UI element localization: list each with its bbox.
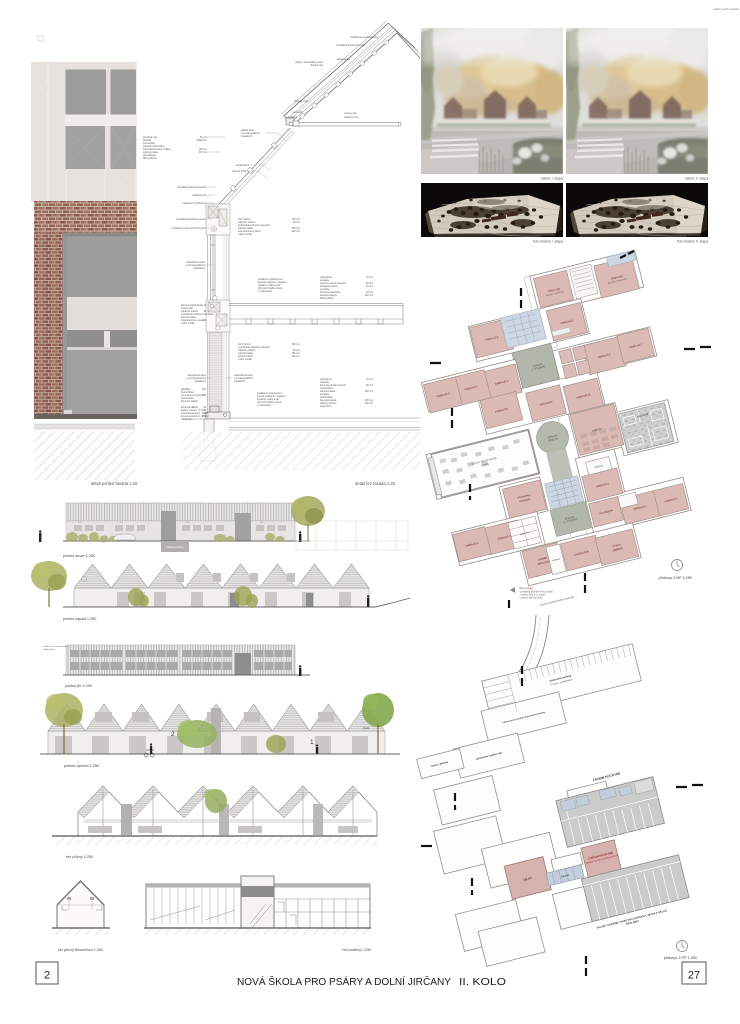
svg-text:horní záclon: horní záclon [238, 343, 251, 346]
svg-text:kročejová izolace: kročejová izolace [320, 285, 338, 288]
svg-text:40/20 mm: 40/20 mm [197, 140, 207, 142]
svg-text:pohled sever 1:250: pohled sever 1:250 [63, 554, 95, 558]
svg-text:tepelná izolace: tepelná izolace [320, 390, 336, 393]
svg-text:kladecí vrstva 6 - 8 mm: kladecí vrstva 6 - 8 mm [181, 409, 205, 412]
svg-text:řez podélný 1:250: řez podélný 1:250 [342, 948, 371, 952]
svg-text:železobetonový věnec: železobetonový věnec [238, 230, 262, 233]
svg-text:1: 1 [310, 739, 314, 746]
svg-text:půdorys 1.PP 1:250: půdorys 1.PP 1:250 [664, 956, 697, 960]
svg-text:studlemu vodou a eliv.: studlemu vodou a eliv. [257, 398, 280, 401]
svg-text:v mistnostech: v mistnostech [258, 290, 273, 293]
svg-text:tepelná izolace: tepelná izolace [143, 151, 159, 154]
svg-text:200 mm: 200 mm [365, 295, 373, 297]
svg-text:- učebny děti na bloku: - učebny děti na bloku [519, 597, 543, 600]
svg-text:1.01: 1.01 [78, 522, 81, 524]
svg-text:osazený věn: osazený věn [344, 113, 358, 115]
svg-text:hydroizolace: hydroizolace [181, 391, 195, 394]
svg-text:vnitřní omítka: vnitřní omítka [181, 322, 196, 325]
svg-text:tepelná izolace: tepelná izolace [181, 316, 197, 319]
svg-text:s termoregulačním: s termoregulačním [234, 377, 253, 380]
svg-text:termoizol.: termoizol. [293, 111, 303, 114]
svg-text:zateplený věn: zateplený věn [344, 116, 359, 119]
svg-text:dřevěný profil: dřevěný profil [232, 170, 246, 173]
svg-text:separace: separace [320, 279, 330, 282]
svg-text:prováděná odtučová měsnič: prováděná odtučová měsnič [176, 218, 206, 221]
svg-text:1.02: 1.02 [120, 522, 123, 524]
svg-text:elektrofixová okna: elektrofixová okna [234, 374, 253, 377]
svg-text:tepelná izolace: tepelná izolace [238, 352, 254, 355]
svg-text:150 mm: 150 mm [292, 344, 300, 346]
svg-text:betonové panely: betonové panely [320, 294, 338, 297]
svg-text:400 mm: 400 mm [292, 231, 300, 233]
svg-text:pojistná hydroizolace: pojistná hydroizolace [143, 145, 165, 148]
svg-text:větraná záclon: větraná záclon [238, 355, 254, 358]
svg-text:dřevěný profil: dřevěný profil [294, 100, 308, 103]
svg-text:330 mm: 330 mm [199, 152, 207, 154]
svg-text:zateplováček: zateplováček [236, 164, 250, 167]
svg-text:odtučové měsnič: odtučové měsnič [181, 310, 199, 313]
svg-text:detail pohled fasáda 1:25: detail pohled fasáda 1:25 [91, 481, 138, 486]
svg-text:150 mm: 150 mm [292, 353, 300, 355]
svg-text:řez příčný 1:250: řez příčný 1:250 [66, 855, 93, 859]
svg-text:detail řez fasáda 1:25: detail řez fasáda 1:25 [355, 481, 396, 486]
svg-text:10 mm: 10 mm [366, 277, 373, 279]
svg-text:zákres II. etapa: zákres II. etapa [685, 177, 708, 181]
svg-text:parozábrana: parozábrana [143, 154, 157, 157]
svg-text:separace: separace [320, 381, 330, 384]
svg-text:podlahové vytápění lan v: podlahové vytápění lan v [258, 278, 284, 281]
svg-text:betonový záklop: betonový záklop [181, 400, 198, 403]
svg-text:prováděná odtučová měsnič: prováděná odtučová měsnič [177, 186, 207, 189]
svg-text:2: 2 [171, 731, 175, 738]
svg-text:hydroizolace: hydroizolace [181, 397, 195, 400]
svg-text:150 mm: 150 mm [292, 219, 300, 221]
svg-text:pohled východ 1:250: pohled východ 1:250 [64, 764, 99, 768]
svg-text:betonová deska s kari sítí: betonová deska s kari sítí [320, 282, 346, 285]
svg-text:v mistnostech: v mistnostech [257, 404, 272, 407]
svg-text:svislé laťování+tep. izolace: svislé laťování+tep. izolace [143, 148, 171, 151]
svg-text:řez příčný tělocvičnou 1:250: řez příčný tělocvičnou 1:250 [58, 948, 103, 952]
svg-text:10 mm: 10 mm [366, 379, 373, 381]
svg-text:atikální okna: atikální okna [241, 129, 255, 132]
svg-text:větrání / fotovoltaický panel: větrání / fotovoltaický panel [295, 61, 323, 64]
svg-text:40 mm: 40 mm [366, 286, 373, 288]
svg-text:pohled západ 1:250: pohled západ 1:250 [63, 617, 96, 621]
svg-text:zasklívací lišt: zasklívací lišt [192, 194, 206, 197]
svg-text:betonová mazanina: betonová mazanina [320, 291, 341, 294]
svg-text:s termoregulačním: s termoregulačním [241, 132, 260, 135]
svg-text:hydroizolace: hydroizolace [320, 387, 334, 390]
svg-text:80 mm: 80 mm [366, 283, 373, 285]
svg-text:přírovník chladit vzduch: přírovník chladit vzduch [258, 287, 283, 290]
svg-text:horní záclon: horní záclon [238, 218, 251, 221]
svg-text:betonová deska s kari sítí: betonová deska s kari sítí [320, 384, 346, 387]
svg-text:betonová deska: betonová deska [320, 399, 337, 402]
svg-text:2: 2 [44, 970, 50, 982]
svg-text:plástička: plástička [181, 388, 191, 391]
svg-text:ateliér starch svoboda: ateliér starch svoboda [714, 7, 740, 11]
svg-text:hydroizolace difuzně propustná: hydroizolace difuzně propustná [238, 346, 271, 349]
svg-text:II. KOLO: II. KOLO [459, 976, 506, 988]
svg-text:vnitřní omítka: vnitřní omítka [238, 358, 253, 361]
svg-text:1.04: 1.04 [260, 522, 263, 524]
svg-text:prováděná odtučová měsnič: prováděná odtučová měsnič [336, 44, 366, 47]
svg-text:80 mm: 80 mm [366, 385, 373, 387]
svg-text:150 mm: 150 mm [365, 400, 373, 402]
svg-text:dřevěný rošt: dřevěný rošt [310, 64, 323, 67]
svg-text:dováděním: dováděním [234, 381, 245, 383]
svg-text:hydroizolace difuzně propustná: hydroizolace difuzně propustná [181, 313, 214, 316]
svg-text:50 mm: 50 mm [200, 137, 207, 139]
svg-text:zákltový podsyp: zákltový podsyp [320, 402, 337, 405]
svg-text:rostlý terén: rostlý terén [181, 418, 193, 421]
svg-text:80 mm: 80 mm [293, 222, 300, 224]
svg-text:sklad a technické zázemí: sklad a technické zázemí [43, 645, 68, 648]
svg-text:SDK podhled: SDK podhled [143, 158, 157, 160]
svg-text:SDK podhled: SDK podhled [320, 298, 334, 300]
svg-text:marmoleum: marmoleum [320, 276, 332, 279]
svg-text:s termoregulačním: s termoregulačním [187, 377, 206, 380]
svg-text:separace: separace [320, 393, 330, 396]
svg-text:1.03: 1.03 [186, 522, 189, 524]
svg-text:vnitřní omítka: vnitřní omítka [238, 233, 253, 236]
svg-text:27: 27 [688, 970, 700, 982]
svg-text:dováděním: dováděním [241, 136, 252, 138]
svg-text:160 mm: 160 mm [199, 149, 207, 151]
svg-text:betoně mazanině - napojení: betoně mazanině - napojení [257, 395, 286, 398]
svg-text:osobní vděř: osobní vděř [181, 308, 193, 310]
svg-text:odtučové měsnič: odtučové měsnič [238, 349, 256, 352]
svg-text:zateplováček: zateplováček [337, 58, 351, 61]
svg-text:přírovník chladit vzduch: přírovník chladit vzduch [257, 401, 282, 404]
svg-text:foto modelu I. etapa: foto modelu I. etapa [533, 240, 563, 244]
svg-text:foto modelu II. etapa: foto modelu II. etapa [677, 240, 708, 244]
svg-text:zákres I. etapa: zákres I. etapa [541, 177, 563, 181]
svg-text:pohled jih 1:250: pohled jih 1:250 [65, 684, 92, 688]
svg-text:odtučové měsnič: odtučové měsnič [238, 221, 256, 224]
svg-text:betonová dlažba: betonová dlažba [181, 406, 199, 409]
svg-text:Café: Café [363, 726, 370, 730]
svg-text:železobetonový věnec: železobetonový věnec [181, 319, 205, 322]
svg-text:prováděcí usměrn ochozích spár: prováděcí usměrn ochozích spár [172, 227, 206, 230]
svg-text:tepelná izolace: tepelná izolace [238, 227, 254, 230]
svg-text:skládaná keramická krytina: skládaná keramická krytina [350, 36, 378, 39]
svg-text:zasklovací s přiznáním: zasklovací s přiznáním [183, 203, 206, 205]
svg-text:laťování: laťování [143, 139, 152, 142]
svg-text:plechová rýna: plechová rýna [143, 136, 158, 139]
svg-text:plovoucí kaslík deska: plovoucí kaslík deska [181, 305, 204, 307]
svg-text:separace: separace [320, 288, 330, 291]
svg-text:marmoleum: marmoleum [320, 378, 332, 381]
svg-text:NOVÁ ŠKOLA PRO PSÁRY A DOLNÍ J: NOVÁ ŠKOLA PRO PSÁRY A DOLNÍ JIRČANY [237, 975, 451, 988]
svg-text:150 mm: 150 mm [292, 228, 300, 230]
svg-text:elektrofixová okna: elektrofixová okna [187, 374, 206, 377]
svg-text:betoně mazanině - napojení: betoně mazanině - napojení [258, 281, 287, 284]
svg-text:piazetta parking: piazetta parking [167, 546, 185, 549]
svg-text:rostlý terén: rostlý terén [320, 405, 332, 408]
svg-text:100 mm: 100 mm [365, 391, 373, 393]
svg-text:dováděním: dováděním [195, 381, 206, 383]
svg-text:hydroizolace: hydroizolace [320, 396, 334, 399]
svg-text:podlahové vytápění lan v: podlahové vytápění lan v [257, 392, 283, 395]
svg-text:studlemu vodou a eliv.: studlemu vodou a eliv. [258, 284, 281, 287]
svg-text:s termoregulačním: s termoregulačním [186, 264, 205, 267]
svg-text:suchoúvadí: suchoúvadí [143, 143, 155, 145]
svg-text:zateplováček: zateplováček [284, 116, 298, 119]
svg-text:100 mm: 100 mm [365, 403, 373, 405]
svg-text:400 mm: 400 mm [292, 356, 300, 358]
svg-text:hydroizolace difuzně propustná: hydroizolace difuzně propustná [238, 224, 271, 227]
svg-text:půdorys 2.NP 1:250: půdorys 2.NP 1:250 [659, 576, 693, 580]
svg-text:20 mm: 20 mm [366, 292, 373, 294]
svg-text:obálky dáse: obálky dáse [43, 649, 55, 651]
svg-text:80 mm: 80 mm [293, 350, 300, 352]
svg-text:elektrofixová okna: elektrofixová okna [186, 261, 205, 264]
svg-text:dováděním: dováděním [194, 268, 205, 270]
